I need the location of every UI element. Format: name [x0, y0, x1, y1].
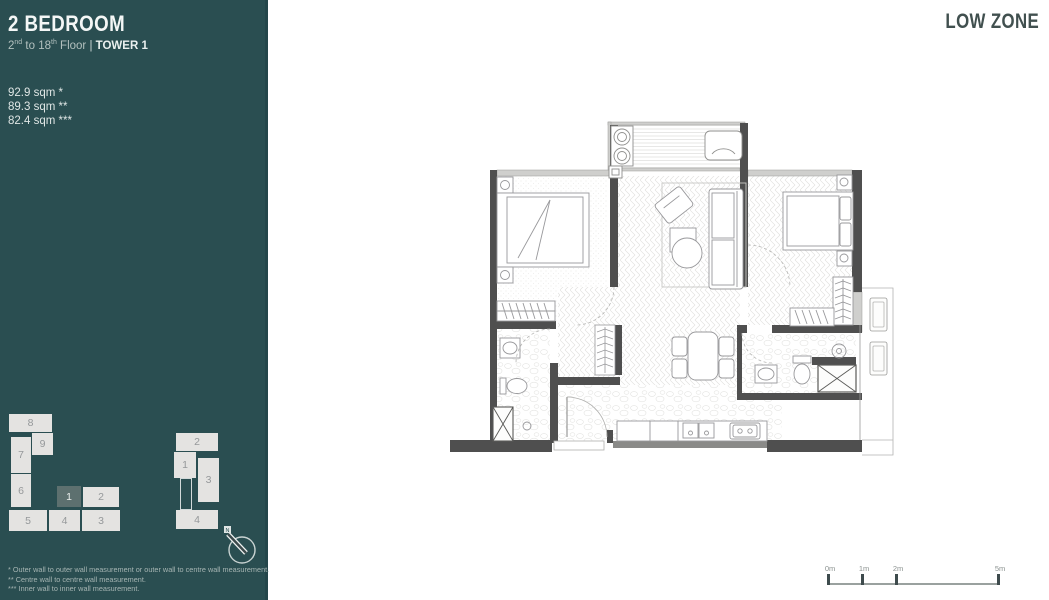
- scale-label: 0m: [825, 564, 835, 573]
- scale-label: 2m: [893, 564, 903, 573]
- keyplan-unit: 3: [198, 458, 219, 502]
- keyplan-tower1: 8 9 7 6 1 2 5 4 3: [8, 404, 133, 536]
- dining-chair: [672, 359, 687, 378]
- keyplan-unit: 9: [32, 433, 53, 455]
- compass-north-icon: N: [220, 524, 262, 570]
- coffee-table: [672, 238, 702, 268]
- pillow: [840, 197, 851, 220]
- sofa-cushion: [712, 193, 734, 238]
- kitchen-wall: [613, 441, 767, 448]
- area-measurements: 92.9 sqm * 89.3 sqm ** 82.4 sqm ***: [8, 86, 72, 128]
- keyplan-unit: 2: [176, 433, 218, 451]
- entry-threshold: [554, 441, 604, 450]
- keyplan-unit: 4: [49, 510, 80, 531]
- elevator: [870, 298, 887, 331]
- corridor: [860, 288, 893, 455]
- scale-tick: [895, 574, 898, 585]
- keyplan-unit: 8: [9, 414, 52, 432]
- keyplan-unit: 7: [11, 437, 31, 473]
- area-line: 89.3 sqm **: [8, 100, 72, 114]
- scale-bar-line: [827, 583, 999, 585]
- keyplan-unit: 1: [174, 452, 196, 478]
- floor-to: 18: [38, 40, 51, 52]
- page-title: 2 BEDROOM: [8, 11, 125, 37]
- scale-tick: [997, 574, 1000, 585]
- kitchen: [617, 421, 767, 441]
- mattress: [507, 197, 583, 263]
- scale-tick: [827, 574, 830, 585]
- footnote-line: *** Inner wall to inner wall measurement…: [8, 584, 269, 594]
- lamp-icon: [501, 271, 510, 280]
- dining-area: [672, 332, 734, 380]
- area-line: 82.4 sqm ***: [8, 114, 72, 128]
- area-line: 92.9 sqm *: [8, 86, 72, 100]
- keyplan-unit: 5: [9, 510, 47, 531]
- scale-tick: [861, 574, 864, 585]
- keyplan-unit: 3: [82, 510, 120, 531]
- toilet-tank: [500, 378, 506, 394]
- keyplan-unit-highlighted: 1: [57, 486, 81, 507]
- elevator: [870, 342, 887, 375]
- measurement-footnotes: * Outer wall to outer wall measurement o…: [8, 565, 269, 594]
- toilet: [507, 379, 527, 394]
- footnote-line: ** Centre wall to centre wall measuremen…: [8, 575, 269, 585]
- mattress: [787, 196, 839, 246]
- lamp-icon: [501, 181, 510, 190]
- keyplan-unit: 6: [11, 474, 31, 507]
- keyplan-unit: 2: [83, 487, 119, 507]
- kitchen-sink: [683, 423, 698, 438]
- scale-label: 1m: [859, 564, 869, 573]
- scale-bar: 0m 1m 2m 5m: [820, 564, 1010, 592]
- dining-chair: [672, 337, 687, 356]
- toilet: [794, 364, 810, 384]
- lamp-icon: [840, 178, 848, 186]
- dining-chair: [719, 337, 734, 356]
- kitchen-sink: [699, 423, 714, 438]
- toilet-tank: [793, 356, 811, 363]
- zone-label: LOW ZONE: [945, 10, 1039, 34]
- floorplan-drawing: [450, 110, 910, 460]
- lounge-chair: [705, 131, 742, 160]
- pillow: [840, 223, 851, 246]
- dining-chair: [719, 359, 734, 378]
- lamp-icon: [840, 254, 848, 262]
- compass-n-label: N: [226, 528, 230, 534]
- sofa-cushion: [712, 240, 734, 285]
- scale-label: 5m: [995, 564, 1005, 573]
- keyplan-unit: 4: [176, 510, 218, 529]
- tower-label: TOWER 1: [96, 40, 148, 52]
- floor-range-subtitle: 2nd to 18th Floor | TOWER 1: [8, 39, 148, 52]
- footnote-line: * Outer wall to outer wall measurement o…: [8, 565, 269, 575]
- keyplan-tower2: 2 1 3 4: [168, 428, 228, 533]
- keyplan-connector: [180, 478, 192, 510]
- dressing-rack: [595, 325, 615, 375]
- dining-table: [688, 332, 718, 380]
- sidebar: 2 BEDROOM 2nd to 18th Floor | TOWER 1 92…: [0, 0, 268, 600]
